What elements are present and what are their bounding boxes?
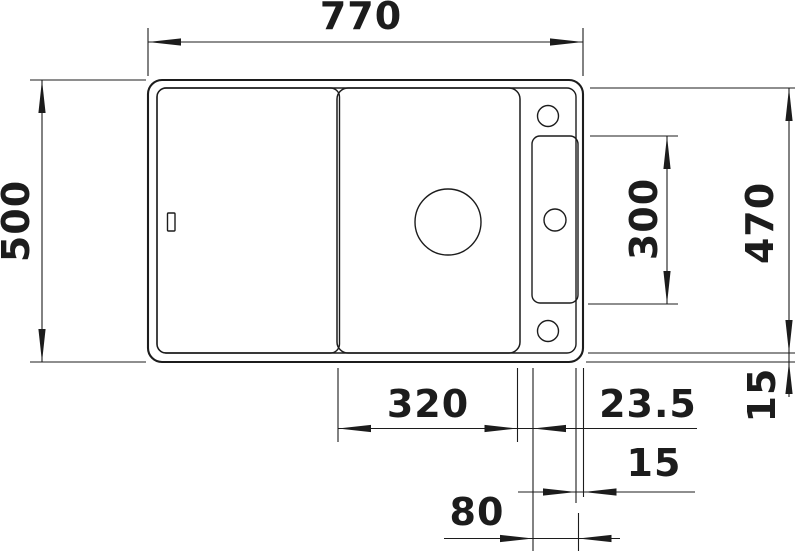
dim-300-label: 300 [622,178,666,260]
arrowhead-right [579,535,612,542]
drain-hole [415,189,481,255]
tap-hole-bottom [538,321,559,342]
dim-bowl-width-chain: 320 23.5 [338,368,697,442]
arrowhead-left [148,38,181,45]
dim-15-right-label: 15 [740,368,784,423]
arrowhead-top [785,88,792,121]
arrowhead-235 [533,425,566,432]
extension-lines [533,368,579,551]
arrowhead-shared [785,320,792,353]
arrowhead-right [550,38,583,45]
dim-770-label: 770 [320,0,402,38]
arrowhead-bottom [663,271,670,304]
dim-23-5-label: 23.5 [599,382,697,426]
dim-470-label: 470 [738,182,782,264]
extension-lines [576,368,584,503]
arrowhead-right [584,488,617,495]
cutting-board-handle-slot [168,213,176,231]
drawing-canvas: 770 500 300 470 15 320 23.5 [0,0,800,551]
arrowhead-left [500,535,533,542]
dim-15-bottom-label: 15 [627,441,682,485]
sink-outer-edge [148,80,583,362]
tap-panel [532,136,578,303]
arrowhead-right [485,425,518,432]
main-bowl [337,88,520,353]
dim-inner-depth-and-rim: 470 15 [586,88,795,422]
arrowhead-left [338,425,371,432]
arrowhead-up [785,362,792,394]
arrowhead-bottom [38,329,45,362]
dim-overall-depth: 500 [0,80,146,362]
arrowhead-left [543,488,576,495]
extension-lines [30,80,146,362]
dim-500-label: 500 [0,180,38,262]
arrowhead-top [38,80,45,113]
sink-body [148,80,583,362]
dim-tap-panel-width: 80 [444,368,620,551]
dim-overall-width: 770 [148,0,583,76]
dim-tap-panel-length: 300 [588,136,678,304]
sink-rim-inner-edge [157,88,576,353]
tap-hole-top [538,106,559,127]
dim-320-label: 320 [387,382,469,426]
dim-80-label: 80 [450,490,505,534]
sink-technical-drawing: 770 500 300 470 15 320 23.5 [0,0,800,551]
tap-hole-middle [544,209,566,231]
cutting-board [157,88,340,353]
arrowhead-top [663,136,670,169]
